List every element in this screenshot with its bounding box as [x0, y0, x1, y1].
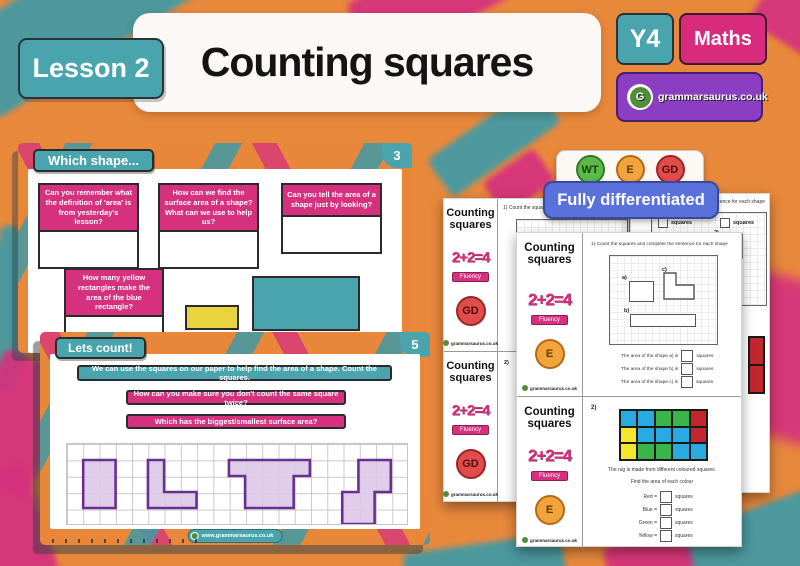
colour-label: Red = [631, 494, 657, 500]
rug-cell-green [637, 443, 654, 460]
poster: Lesson 2 Counting squares Y4 Maths G gra… [0, 0, 800, 566]
rug-cell-yellow [620, 443, 637, 460]
answer-box [281, 217, 382, 254]
question-text: Can you tell the area of a shape just by… [281, 183, 382, 217]
fluency-logo: 2+2=4 Fluency [452, 403, 490, 436]
rug-cell-blue [672, 443, 689, 460]
e-badge: E [535, 339, 565, 369]
answer-box [660, 517, 672, 529]
rug-cell-blue [655, 427, 672, 444]
rug-caption: The rug is made from different coloured … [583, 467, 741, 473]
rug-cell-green [672, 410, 689, 427]
slide-which-shape: 3 Can you remember what the definition o… [18, 143, 412, 353]
answer-box [660, 530, 672, 542]
answer-row: squares [720, 218, 754, 228]
fluency-logo-text: 2+2=4 [452, 403, 490, 418]
worksheet-title: Counting squares [444, 361, 497, 385]
squares-label: squares [675, 507, 693, 513]
answer-row: squares [658, 218, 692, 228]
worksheet-footer: grammarsaurus.co.uk [443, 340, 498, 346]
worksheet-question-area: 1) Count the squares and complete the se… [583, 233, 741, 396]
rug-cell-red [749, 337, 764, 365]
area-sentence-row: The area of the shape c) is squares [621, 376, 713, 388]
squares-label: squares [733, 220, 754, 226]
shape-rectangle [83, 460, 115, 508]
blue-rectangle [252, 276, 360, 331]
question-banner: Which has the biggest/smallest surface a… [126, 414, 346, 429]
slide-title-banner: Which shape... [33, 149, 154, 172]
fluency-logo: 2+2=4 Fluency [452, 250, 490, 283]
colour-answer-row: Green = squares [631, 517, 693, 529]
squares-label: squares [675, 494, 693, 500]
year-badge: Y4 [616, 13, 674, 65]
worksheet-footer: grammarsaurus.co.uk [443, 491, 498, 497]
rug-cell-yellow [620, 427, 637, 444]
colour-answer-row: Red = squares [631, 491, 693, 503]
rug-cell-red [690, 427, 707, 444]
question-text: 1) Count the squares and complete the se… [591, 242, 739, 247]
question-text: Can you remember what the definition of … [38, 183, 139, 232]
rug-cell-red [690, 410, 707, 427]
area-sentence: The area of the shape a) is [621, 354, 678, 359]
rug-cell-blue [637, 410, 654, 427]
worksheet-title: Counting squares [517, 242, 582, 267]
teaching-point-banner: We can use the squares on our paper to h… [77, 365, 392, 381]
shape-label: a) [622, 275, 627, 281]
squares-label: squares [671, 220, 692, 226]
squares-label: squares [696, 354, 713, 359]
squares-label: squares [675, 533, 693, 539]
slide-footer-link[interactable]: www.grammarsaurus.co.uk [188, 529, 283, 543]
answer-box [38, 232, 139, 269]
colour-answer-row: Blue = squares [631, 504, 693, 516]
fluency-logo: 2+2=4 Fluency [528, 291, 571, 326]
answer-box [681, 350, 693, 362]
question-text: How many yellow rectangles make the area… [64, 268, 164, 317]
shape-t [229, 460, 310, 508]
worksheet-e: Counting squares 2+2=4 Fluency E grammar… [516, 232, 742, 547]
answer-box [681, 363, 693, 375]
rug-cell-blue [637, 427, 654, 444]
colour-label: Green = [631, 520, 657, 526]
worksheet-question-area: 2) The rug is made from different colour… [583, 397, 741, 548]
fluency-label: Fluency [531, 471, 568, 481]
rug-caption: Find the area of each colour [583, 479, 741, 485]
question-number: 2) [504, 360, 509, 366]
rug-grid-partial [748, 336, 765, 394]
answer-box [658, 218, 668, 228]
question-banner: How can you make sure you don't count th… [126, 390, 346, 405]
wt-badge: WT [576, 155, 605, 184]
rug-cell-blue [672, 427, 689, 444]
fluency-logo-text: 2+2=4 [452, 250, 490, 265]
title-card: Counting squares [133, 13, 601, 112]
answer-box [660, 504, 672, 516]
shape-l [148, 460, 197, 508]
fluency-logo-text: 2+2=4 [528, 447, 571, 464]
rug-cell-red [749, 365, 764, 393]
slide-content: Can you remember what the definition of … [28, 169, 402, 353]
gd-badge: GD [656, 155, 685, 184]
footer-link-label: www.grammarsaurus.co.uk [202, 533, 274, 539]
fluency-logo: 2+2=4 Fluency [528, 447, 571, 482]
shape-s [342, 460, 391, 524]
counting-grid [66, 443, 408, 525]
shape-label: b) [624, 308, 629, 314]
colour-answer-row: Yellow = squares [631, 530, 693, 542]
slide-page-number: 3 [382, 143, 412, 168]
answer-box [660, 491, 672, 503]
shape-panel: a) c) b) [609, 255, 718, 345]
lesson-badge: Lesson 2 [18, 38, 164, 99]
shape-outline [629, 281, 654, 302]
question-number: 2) [591, 405, 596, 411]
e-badge: E [535, 495, 565, 525]
worksheet-footer: grammarsaurus.co.uk [522, 537, 577, 543]
area-sentence: The area of the shape b) is [621, 367, 678, 372]
question-card: Can you tell the area of a shape just by… [281, 183, 382, 254]
shape-outline [630, 314, 696, 327]
fluency-label: Fluency [531, 315, 568, 325]
squares-label: squares [675, 520, 693, 526]
fluency-label: Fluency [452, 425, 489, 435]
area-sentence: The area of the shape c) is [621, 380, 678, 385]
area-sentence-row: The area of the shape a) is squares [621, 350, 713, 362]
subject-badge: Maths [679, 13, 767, 65]
fluency-label: Fluency [452, 272, 489, 282]
shape-outline [663, 272, 695, 300]
grammarsaurus-logo-icon [191, 532, 199, 540]
rug-cell-green [655, 410, 672, 427]
question-card: How can we find the surface area of a sh… [158, 183, 259, 269]
answer-box [158, 232, 259, 269]
rug-cell-green [655, 443, 672, 460]
answer-box [681, 376, 693, 388]
grammarsaurus-logo-icon: G [627, 84, 653, 110]
slide-content: We can use the squares on our paper to h… [50, 354, 420, 529]
colour-label: Yellow = [631, 533, 657, 539]
squares-label: squares [696, 367, 713, 372]
rug-cell-blue [620, 410, 637, 427]
question-text: How can we find the surface area of a sh… [158, 183, 259, 232]
page-title: Counting squares [201, 39, 534, 86]
yellow-rectangle [185, 305, 239, 330]
brand-badge[interactable]: G grammarsaurus.co.uk [616, 72, 763, 122]
worksheet-title: Counting squares [517, 406, 582, 431]
worksheet-title: Counting squares [444, 208, 497, 232]
grid-shapes [67, 444, 407, 524]
answer-box [720, 218, 730, 228]
e-badge: E [616, 155, 645, 184]
slide-lets-count: 5 We can use the squares on our paper to… [40, 332, 430, 545]
colour-label: Blue = [631, 507, 657, 513]
rug-grid [619, 409, 708, 461]
fully-differentiated-ribbon: Fully differentiated [543, 181, 719, 219]
rug-cell-blue [690, 443, 707, 460]
gd-badge: GD [456, 296, 486, 326]
area-sentence-row: The area of the shape b) is squares [621, 363, 713, 375]
question-card: Can you remember what the definition of … [38, 183, 139, 269]
gd-badge: GD [456, 449, 486, 479]
worksheet-footer: grammarsaurus.co.uk [522, 385, 577, 391]
slide-title-banner: Lets count! [55, 337, 146, 359]
squares-label: squares [696, 380, 713, 385]
fluency-logo-text: 2+2=4 [528, 291, 571, 308]
brand-link-label: grammarsaurus.co.uk [658, 91, 768, 103]
